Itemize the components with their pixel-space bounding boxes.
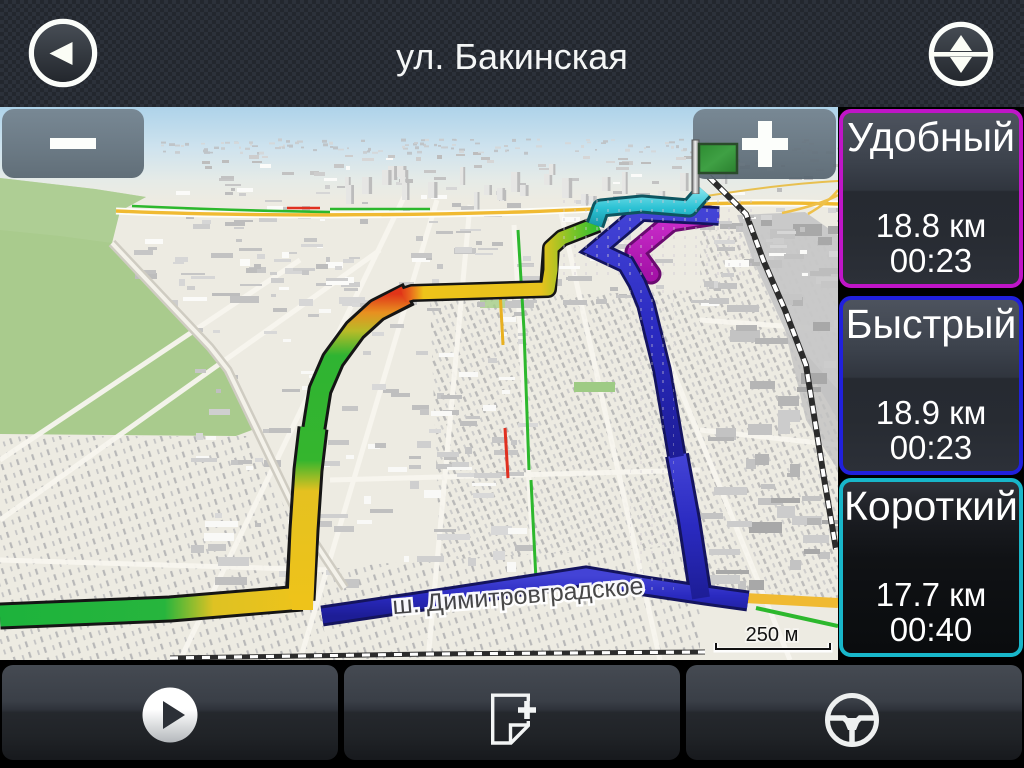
svg-text:250 м: 250 м [746,624,799,646]
